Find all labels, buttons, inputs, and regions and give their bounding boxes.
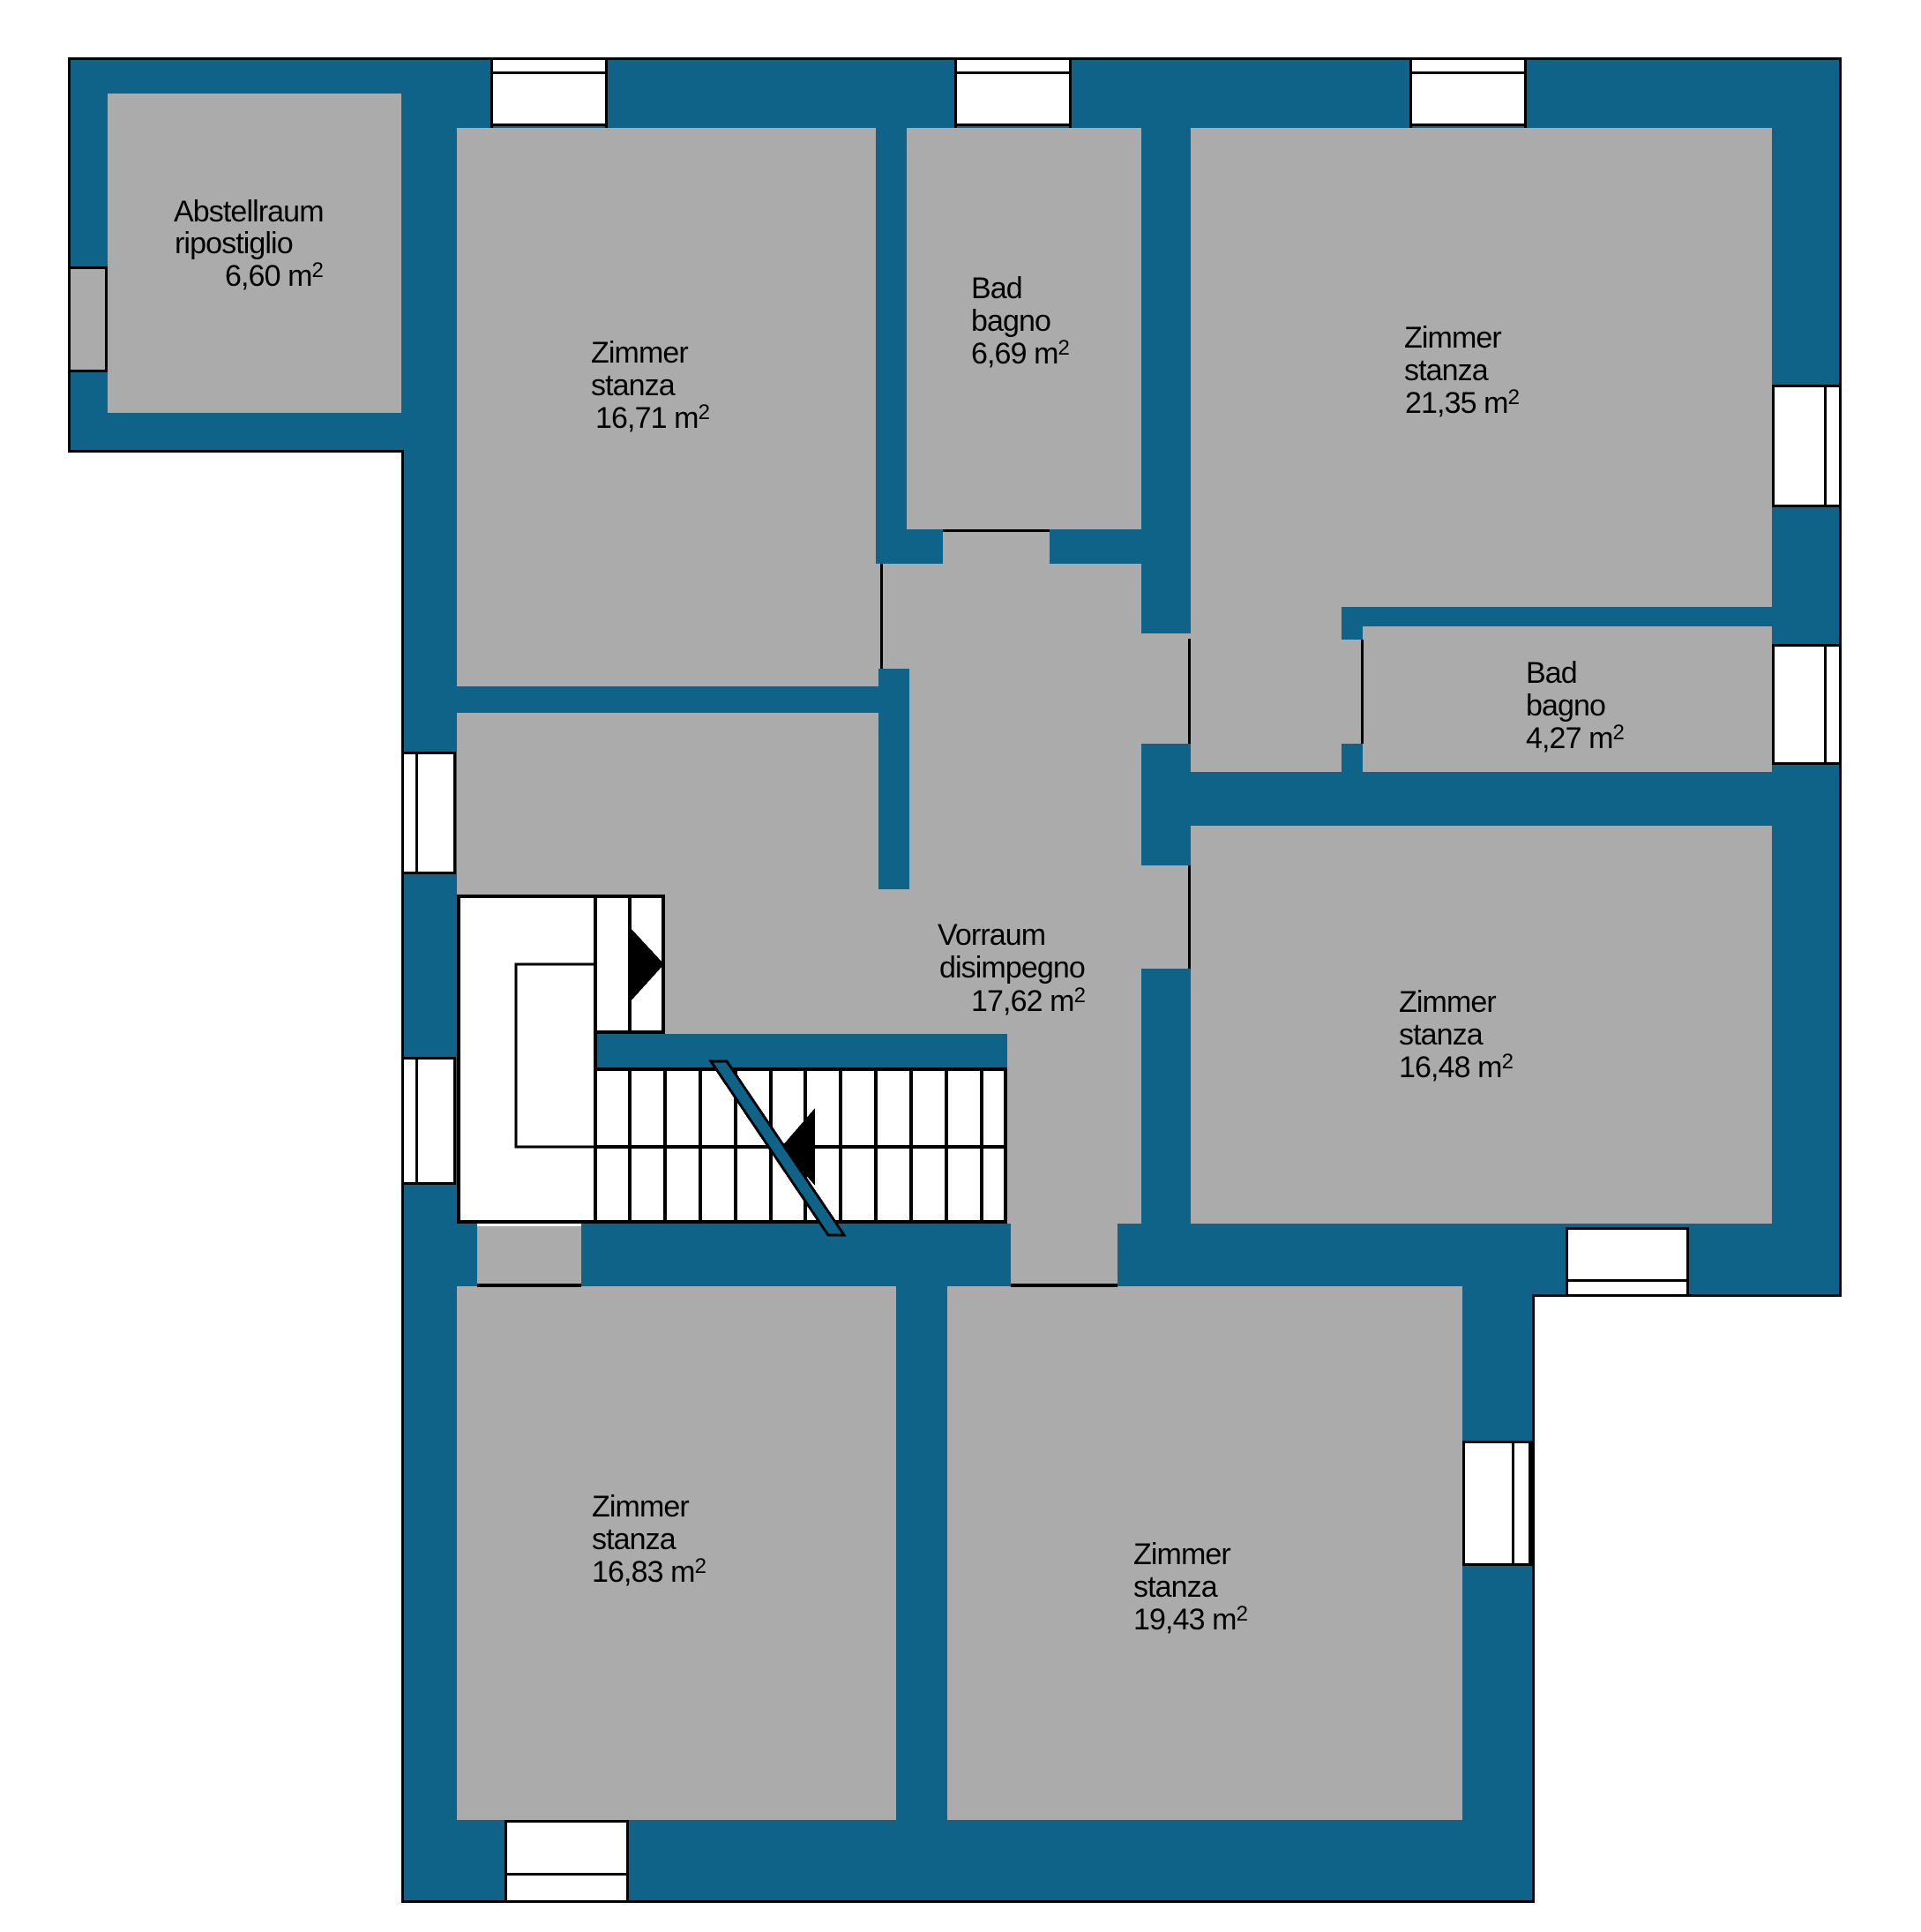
svg-text:16,48 m2: 16,48 m2 <box>1399 1050 1514 1084</box>
svg-text:Bad: Bad <box>971 272 1022 305</box>
svg-text:Abstellraum: Abstellraum <box>174 195 324 228</box>
svg-text:16,71 m2: 16,71 m2 <box>595 401 710 435</box>
svg-text:stanza: stanza <box>1399 1018 1484 1052</box>
svg-text:Zimmer: Zimmer <box>592 1490 689 1524</box>
svg-text:19,43 m2: 19,43 m2 <box>1133 1602 1248 1636</box>
svg-text:bagno: bagno <box>1526 689 1605 723</box>
svg-text:Zimmer: Zimmer <box>1399 985 1496 1019</box>
svg-text:17,62 m2: 17,62 m2 <box>971 984 1086 1018</box>
svg-text:bagno: bagno <box>971 304 1050 338</box>
svg-text:Bad: Bad <box>1526 656 1577 690</box>
svg-text:4,27 m2: 4,27 m2 <box>1526 721 1625 755</box>
svg-text:16,83 m2: 16,83 m2 <box>592 1554 706 1589</box>
svg-text:Zimmer: Zimmer <box>591 336 688 370</box>
svg-text:stanza: stanza <box>591 369 676 402</box>
svg-text:ripostiglio: ripostiglio <box>175 227 293 260</box>
svg-text:6,69 m2: 6,69 m2 <box>971 336 1070 371</box>
svg-text:Zimmer: Zimmer <box>1404 321 1501 355</box>
svg-text:Zimmer: Zimmer <box>1133 1538 1230 1571</box>
svg-text:stanza: stanza <box>1404 354 1489 387</box>
svg-text:stanza: stanza <box>1133 1570 1218 1604</box>
svg-text:6,60 m2: 6,60 m2 <box>225 258 324 293</box>
svg-text:stanza: stanza <box>592 1523 676 1556</box>
svg-text:Vorraum: Vorraum <box>938 918 1045 952</box>
svg-text:21,35 m2: 21,35 m2 <box>1405 386 1520 420</box>
svg-text:disimpegno: disimpegno <box>939 951 1085 985</box>
